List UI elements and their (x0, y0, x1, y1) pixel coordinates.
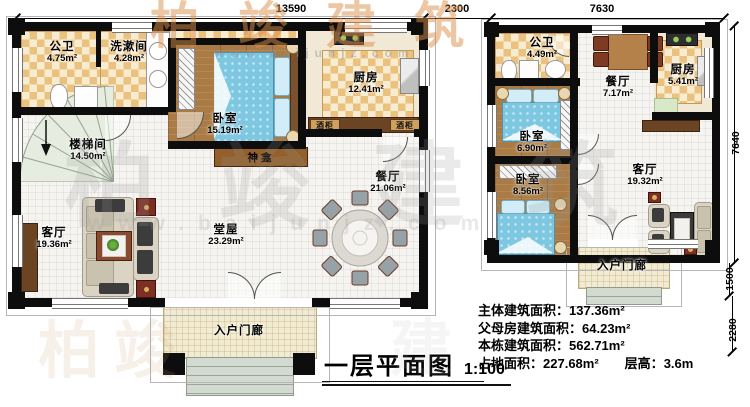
room-label-left-bathroom: 公卫 4.75m² (47, 41, 77, 65)
room-name: 入户门廊 (597, 260, 647, 273)
room-area: 4.75m² (47, 54, 77, 65)
window (330, 298, 400, 309)
window (648, 239, 698, 249)
room-label-right-bedroom2: 卧室 8.56m² (513, 174, 543, 198)
room-area: 4.28m² (110, 54, 148, 65)
room-name: 入户门廊 (214, 325, 264, 338)
stat-label: 父母房建筑面积： (478, 321, 582, 336)
top-dimension-line (16, 18, 724, 19)
dimension-porch-height: 1500 (724, 259, 736, 299)
room-label-right-kitchen: 厨房 5.41m² (668, 64, 698, 88)
room-label-left-porch: 入户门廊 (214, 325, 264, 338)
porch-pillar (293, 353, 315, 375)
floorplan-canvas: 神龛 酒柜 酒柜 (0, 0, 750, 407)
plan-title-text: 一层平面图 (324, 353, 454, 380)
porch-pillar (163, 353, 185, 375)
room-label-right-porch: 入户门廊 (597, 260, 647, 273)
corner-pillar (8, 18, 25, 35)
window (487, 192, 497, 238)
room-label-left-bedroom: 卧室 15.19m² (207, 113, 242, 137)
corner-pillar (8, 292, 25, 309)
corner-pillar (705, 240, 720, 255)
room-area: 7.17m² (603, 89, 633, 100)
corner-pillar (411, 18, 428, 35)
stat-line: 父母房建筑面积：64.23m² (478, 320, 693, 338)
room-area: 23.29m² (208, 237, 243, 248)
window (419, 150, 430, 192)
stat-value: 227.68m² (543, 356, 599, 371)
entrance-opening (165, 298, 312, 307)
room-area: 4.49m² (527, 50, 557, 61)
window (704, 48, 714, 98)
corner-pillar (484, 240, 499, 255)
stat-value: 562.71m² (569, 338, 625, 353)
entrance-opening (588, 239, 638, 247)
room-area: 8.56m² (513, 187, 543, 198)
dimension-right-height: 7640 (730, 123, 742, 163)
room-label-left-living: 客厅 19.36m² (36, 227, 71, 251)
window (112, 22, 152, 33)
room-label-hall: 堂屋 23.29m² (208, 224, 243, 248)
room-area: 5.41m² (668, 77, 698, 88)
stat-value: 3.6m (664, 356, 694, 371)
room-label-right-living: 客厅 19.32m² (627, 164, 662, 188)
room-label-left-dining: 餐厅 21.06m² (370, 171, 405, 195)
room-area: 6.90m² (517, 144, 547, 155)
room-label-right-bathroom: 公卫 4.49m² (527, 37, 557, 61)
dimension-top-right: 7630 (587, 3, 617, 15)
title-underline (322, 381, 484, 382)
plan-title: 一层平面图1:100 (322, 346, 511, 386)
room-label-right-dining: 餐厅 7.17m² (603, 76, 633, 100)
room-area: 19.32m² (627, 177, 662, 188)
plan-scale: 1:100 (464, 361, 505, 378)
stat-label: 层高： (625, 356, 664, 371)
dimension-steps-height: 2280 (727, 310, 739, 350)
window (12, 215, 23, 267)
room-area: 12.41m² (348, 85, 383, 96)
window (487, 105, 497, 147)
room-label-left-washroom: 洗漱间 4.28m² (110, 41, 148, 65)
room-area: 19.36m² (36, 240, 71, 251)
corner-pillar (411, 292, 428, 309)
dimension-top-left: 13590 (273, 3, 310, 15)
stat-label: 主体建筑面积： (478, 303, 569, 318)
stat-value: 64.23m² (582, 321, 630, 336)
window (419, 50, 430, 86)
window (52, 298, 128, 309)
window (592, 25, 622, 35)
corner-pillar (484, 22, 499, 37)
room-area: 14.50m² (69, 152, 107, 163)
room-label-stairwell: 楼梯间 14.50m² (69, 139, 107, 163)
corner-pillar (705, 22, 720, 37)
room-label-right-bedroom1: 卧室 6.90m² (517, 131, 547, 155)
window (12, 118, 23, 162)
room-area: 15.19m² (207, 126, 242, 137)
stat-value: 137.36m² (569, 303, 625, 318)
stat-line: 主体建筑面积：137.36m² (478, 302, 693, 320)
room-area: 21.06m² (370, 184, 405, 195)
window (345, 22, 407, 33)
dimension-top-gap: 2300 (442, 3, 472, 15)
window (12, 48, 23, 92)
room-label-left-kitchen: 厨房 12.41m² (348, 72, 383, 96)
